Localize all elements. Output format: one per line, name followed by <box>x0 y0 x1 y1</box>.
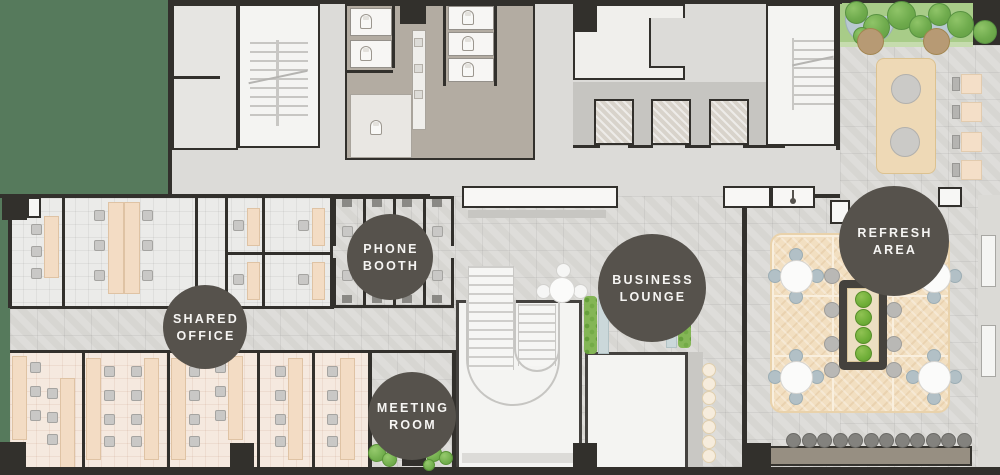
cafe-table <box>890 127 920 157</box>
round-table <box>918 361 951 394</box>
round-table <box>780 260 813 293</box>
label-line: ROOM <box>389 418 437 432</box>
stool <box>702 363 716 377</box>
office-chair <box>189 390 200 401</box>
office-chair <box>298 220 309 231</box>
booth-table <box>342 199 352 207</box>
stair-hall-landing <box>462 453 578 463</box>
column <box>0 442 26 475</box>
reception-counter <box>462 186 618 208</box>
office-chair <box>131 366 142 377</box>
wall <box>333 196 336 246</box>
seat-back <box>952 105 960 119</box>
wall <box>443 6 446 86</box>
stool <box>702 406 716 420</box>
sink <box>414 38 423 47</box>
office-chair <box>31 224 42 235</box>
column <box>230 443 254 467</box>
office-chair <box>131 414 142 425</box>
wall <box>0 467 1000 475</box>
bench-seat <box>961 160 982 180</box>
door-handle-icon <box>792 190 794 199</box>
wall <box>168 0 172 196</box>
office-chair <box>327 390 338 401</box>
door-frame <box>981 235 996 287</box>
coffee-bar-bench <box>766 446 972 466</box>
elevator-car <box>709 99 749 145</box>
wall <box>368 350 456 353</box>
wall <box>743 145 785 148</box>
office-chair <box>189 414 200 425</box>
bench-seat <box>961 74 982 94</box>
bar-stool <box>802 433 817 448</box>
bar-stool <box>957 433 972 448</box>
tree-icon <box>973 20 997 44</box>
bar-stool <box>864 433 879 448</box>
desk <box>60 378 75 468</box>
desk <box>171 358 186 460</box>
elevator-car <box>594 99 634 145</box>
office-chair <box>47 434 58 445</box>
desk <box>12 356 27 440</box>
office-chair <box>30 386 41 397</box>
desk <box>86 358 101 460</box>
wall <box>225 252 333 255</box>
planter-stool <box>824 302 840 318</box>
wall <box>573 145 600 148</box>
lounge-pilaster <box>688 352 703 475</box>
outdoor-lawn-northwest <box>0 0 170 196</box>
office-chair <box>233 220 244 231</box>
desk <box>247 262 260 300</box>
planter-stool <box>824 362 840 378</box>
office-chair <box>47 388 58 399</box>
wall <box>257 352 260 470</box>
room-notch <box>649 18 685 68</box>
office-chair <box>275 414 286 425</box>
desk <box>312 262 325 300</box>
toilet-icon <box>370 120 382 135</box>
white-cabinet <box>27 197 41 218</box>
wall <box>167 352 170 470</box>
desk <box>228 356 243 440</box>
column <box>2 197 27 220</box>
office-chair <box>94 210 105 221</box>
label-line: MEETING <box>377 401 449 415</box>
bench-seat <box>961 102 982 122</box>
terrace-table <box>857 28 884 55</box>
hedge-west <box>584 296 597 354</box>
label-line: LOUNGE <box>620 290 687 304</box>
wall <box>82 352 85 470</box>
booth-table <box>432 295 442 303</box>
office-chair <box>30 362 41 373</box>
terrace-table <box>923 28 950 55</box>
office-chair <box>142 210 153 221</box>
stair-rail-east <box>792 38 794 110</box>
office-chair <box>94 270 105 281</box>
office-chair <box>189 436 200 447</box>
office-chair <box>104 414 115 425</box>
office-chair <box>275 390 286 401</box>
label-line: REFRESH <box>857 226 932 240</box>
desk <box>124 202 140 294</box>
office-chair <box>215 410 226 421</box>
plant-icon <box>855 291 872 308</box>
office-chair <box>233 274 244 285</box>
wall <box>628 145 653 148</box>
meeting-room-label: MEETING ROOM <box>368 372 456 460</box>
bench-seat <box>961 132 982 152</box>
plant-icon <box>855 327 872 344</box>
office-chair <box>327 366 338 377</box>
office-chair <box>327 414 338 425</box>
booth-table <box>432 199 442 207</box>
column <box>744 443 771 470</box>
office-chair <box>131 436 142 447</box>
sink <box>414 64 423 73</box>
side-counter <box>723 186 771 208</box>
office-floor-plan: PHONE BOOTH SHARED OFFICE BUSINESS LOUNG… <box>0 0 1000 475</box>
office-chair <box>275 436 286 447</box>
office-chair <box>94 240 105 251</box>
label-line: BOOTH <box>363 259 419 273</box>
bar-stool <box>848 433 863 448</box>
office-chair <box>275 366 286 377</box>
seat-back <box>952 77 960 91</box>
office-chair <box>432 270 443 281</box>
column <box>400 0 426 24</box>
office-chair <box>327 436 338 447</box>
toilet-icon <box>462 10 474 25</box>
office-chair <box>31 268 42 279</box>
bush-icon <box>423 459 435 471</box>
plant-icon <box>855 309 872 326</box>
wall <box>494 6 497 86</box>
bush-icon <box>439 451 453 465</box>
tree-icon <box>947 11 974 38</box>
business-lounge-label: BUSINESS LOUNGE <box>598 234 706 342</box>
seat-back <box>952 135 960 149</box>
lounge-meeting-room <box>585 352 688 475</box>
bar-stool <box>910 433 925 448</box>
wall <box>312 352 315 470</box>
booth-table <box>402 199 412 207</box>
wall <box>836 0 840 150</box>
wall <box>345 70 393 73</box>
planter-stool <box>886 362 902 378</box>
bar-stool <box>786 433 801 448</box>
stool <box>702 391 716 405</box>
wall <box>333 305 454 308</box>
label-line: BUSINESS <box>612 273 694 287</box>
stair-rail-west <box>276 40 279 126</box>
desk <box>288 358 303 460</box>
planter-stool <box>824 268 840 284</box>
office-chair <box>31 246 42 257</box>
wall <box>62 198 65 306</box>
lounge-chair <box>556 263 571 278</box>
wall <box>451 196 454 246</box>
round-table <box>549 277 575 303</box>
elevator-car <box>651 99 691 145</box>
sink <box>414 90 423 99</box>
column <box>575 6 597 32</box>
phone-booth-label: PHONE BOOTH <box>347 214 433 300</box>
planter-stool <box>824 336 840 352</box>
office-chair <box>104 390 115 401</box>
desk <box>340 358 355 460</box>
counter-shadow <box>468 210 606 218</box>
bar-stool <box>833 433 848 448</box>
toilet-icon <box>360 14 372 29</box>
office-chair <box>104 366 115 377</box>
toilet-icon <box>462 62 474 77</box>
desk <box>108 202 124 294</box>
office-chair <box>298 274 309 285</box>
seat-back <box>952 163 960 177</box>
column <box>573 443 597 469</box>
bar-stool <box>926 433 941 448</box>
wall <box>685 145 711 148</box>
stool <box>702 420 716 434</box>
white-cabinet <box>938 187 962 207</box>
label-line: SHARED <box>173 312 239 326</box>
bar-stool <box>895 433 910 448</box>
toilet-icon <box>462 36 474 51</box>
booth-table <box>342 295 352 303</box>
wall <box>168 0 842 4</box>
bar-stool <box>817 433 832 448</box>
booth-table <box>372 199 382 207</box>
wall <box>451 258 454 308</box>
planter-stool <box>886 336 902 352</box>
shared-office-label: SHARED OFFICE <box>163 285 247 369</box>
plant-icon <box>855 345 872 362</box>
desk <box>144 358 159 460</box>
stair-curve-inner <box>514 300 560 372</box>
wall <box>333 258 336 308</box>
label-line: AREA <box>873 243 917 257</box>
office-chair <box>215 386 226 397</box>
door-frame <box>981 325 996 377</box>
office-chair <box>47 412 58 423</box>
stool <box>702 377 716 391</box>
stair-treads-east <box>794 40 834 106</box>
wall <box>392 6 395 68</box>
bar-stool <box>941 433 956 448</box>
desk <box>312 208 325 246</box>
office-chair <box>104 436 115 447</box>
office-chair <box>142 270 153 281</box>
stool <box>702 449 716 463</box>
office-chair <box>30 410 41 421</box>
desk <box>44 216 59 278</box>
refresh-area-label: REFRESH AREA <box>839 186 949 296</box>
label-line: PHONE <box>363 242 418 256</box>
desk <box>247 208 260 246</box>
bar-stool <box>879 433 894 448</box>
planter-stool <box>886 302 902 318</box>
office-chair <box>432 226 443 237</box>
cafe-table <box>891 74 921 104</box>
wall <box>172 76 220 79</box>
round-table <box>780 361 813 394</box>
wall <box>742 196 747 468</box>
office-chair <box>142 240 153 251</box>
label-line: OFFICE <box>176 329 235 343</box>
toilet-icon <box>360 46 372 61</box>
office-chair <box>131 390 142 401</box>
stool <box>702 435 716 449</box>
